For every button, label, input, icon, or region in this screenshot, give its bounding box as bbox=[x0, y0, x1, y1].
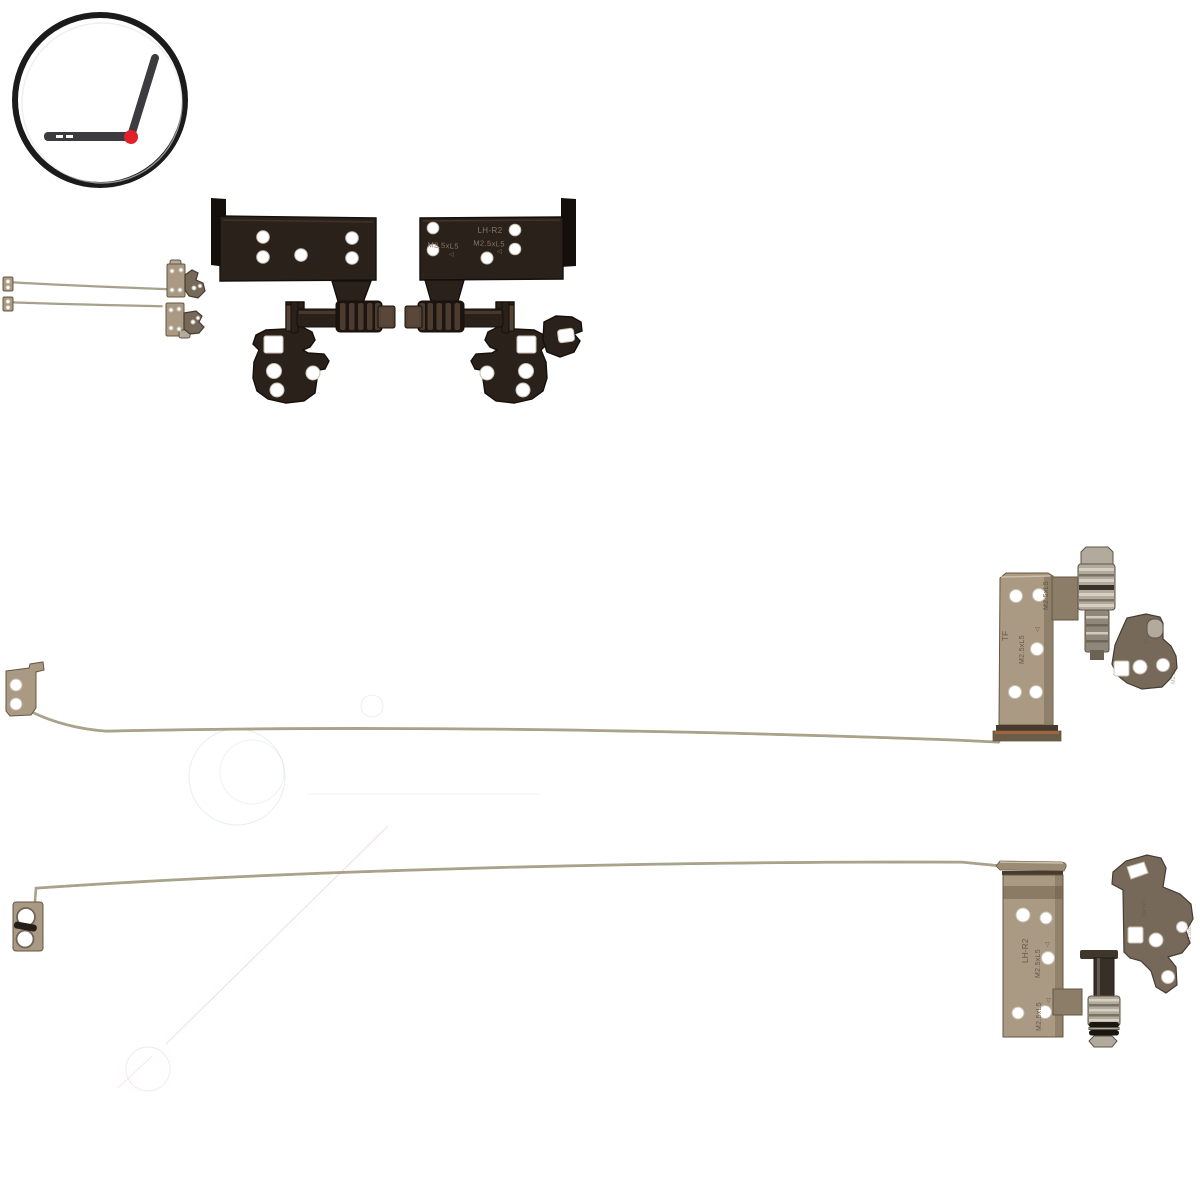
laptop-port-dash bbox=[66, 135, 73, 138]
mini-hinge-rail-2 bbox=[3, 297, 204, 338]
hinge-barrel bbox=[1080, 950, 1120, 1047]
watermark-circle bbox=[220, 740, 284, 804]
stamp-screw-spec: M2.5xL5 bbox=[473, 238, 505, 248]
hinge-barrel bbox=[1078, 547, 1115, 660]
screw-hole bbox=[6, 280, 10, 284]
barrel-rib bbox=[1089, 999, 1119, 1002]
screw-hole bbox=[480, 366, 494, 380]
screw-hole bbox=[1042, 952, 1055, 965]
screw-hole bbox=[519, 364, 534, 379]
screw-hole bbox=[196, 316, 199, 319]
stamp-screw-spec: M2.5xL5 bbox=[1035, 949, 1042, 978]
screw-hole bbox=[1012, 1007, 1024, 1019]
brand-logo bbox=[15, 15, 185, 185]
shaft-highlight bbox=[299, 311, 336, 314]
arm-knuckle bbox=[1147, 619, 1163, 638]
shaft-highlight bbox=[464, 311, 501, 314]
hinge-dot-icon bbox=[124, 130, 138, 144]
screw-hole bbox=[179, 268, 183, 272]
screw-hole bbox=[1162, 971, 1175, 984]
stamp-screw-spec: M2.5xL5 bbox=[427, 240, 459, 251]
screw-hole bbox=[169, 326, 173, 330]
screw-hole bbox=[6, 300, 10, 304]
ring-gap bbox=[1089, 1028, 1119, 1030]
hinge-rail-middle: TF M2.5xL5 M2.5xL5 ◁ △ M2.5xL3 bbox=[6, 547, 1177, 743]
mini-hinge-arm bbox=[185, 270, 205, 298]
dark-hinge-left bbox=[211, 198, 395, 403]
barrel-groove bbox=[1086, 640, 1108, 643]
screw-hole bbox=[306, 366, 320, 380]
knurl-rib bbox=[349, 303, 355, 330]
lip-highlight bbox=[1000, 862, 1063, 863]
watermark bbox=[118, 695, 540, 1091]
screw-hole bbox=[257, 251, 270, 264]
hinge-arm bbox=[1112, 614, 1177, 689]
mini-hinge-rail-1 bbox=[3, 260, 205, 298]
barrel-groove bbox=[1086, 624, 1108, 627]
screw-hole bbox=[509, 224, 521, 236]
stamp-triangle: △ bbox=[1143, 638, 1148, 644]
screw-hole bbox=[1177, 922, 1188, 933]
screw-hole bbox=[1040, 912, 1052, 924]
screw-hole bbox=[198, 284, 201, 287]
barrel-tip bbox=[1090, 650, 1104, 660]
screw-hole bbox=[170, 269, 174, 273]
stamp-screw-spec: M2.5xL5 bbox=[1036, 1002, 1043, 1031]
screw-hole bbox=[1030, 686, 1043, 699]
nut-face bbox=[408, 309, 419, 325]
square-hole bbox=[1128, 927, 1143, 943]
stamp-screw-spec: M2.5xL3 bbox=[1171, 663, 1177, 684]
screw-hole bbox=[1010, 590, 1023, 603]
barrel-hex-cap bbox=[1081, 547, 1113, 564]
screw-hole bbox=[1009, 686, 1022, 699]
o-ring bbox=[1089, 1022, 1119, 1028]
claw-slot bbox=[557, 328, 575, 343]
screw-hole bbox=[1157, 659, 1170, 672]
rail-wire bbox=[35, 862, 1003, 901]
screw-hole bbox=[191, 320, 195, 324]
knurl-rib bbox=[437, 303, 443, 330]
stamp-model: LH-R2 bbox=[477, 226, 502, 235]
screw-hole bbox=[346, 252, 359, 265]
stamp-screw-spec: M2.5xL5 bbox=[1043, 581, 1050, 610]
hinge-neck bbox=[1052, 577, 1078, 620]
nut-face bbox=[381, 309, 392, 325]
dark-hinge-right: LH-R2 M2.5xL5 M2.5xL5 ◁ ◁ bbox=[405, 198, 582, 403]
knurl-rib bbox=[358, 303, 364, 330]
hinge-neck bbox=[1053, 989, 1082, 1015]
stamp-maker-mark: TF bbox=[1001, 631, 1010, 641]
barrel-rib bbox=[1079, 579, 1114, 582]
stamp-triangle: ◁ bbox=[1159, 955, 1164, 961]
mini-rail-wire bbox=[12, 282, 167, 289]
mirrored-parts bbox=[405, 301, 547, 403]
hinge-rail-bottom: LH-R2 M2.5xL5 ◁ M2.5xL5 ◁ LH-R2 bbox=[13, 855, 1193, 1047]
lip-orange-line bbox=[995, 731, 1059, 734]
screw-hole bbox=[346, 232, 359, 245]
screw-hole bbox=[516, 383, 530, 397]
screw-hole bbox=[192, 286, 196, 290]
rail-wire bbox=[32, 712, 999, 742]
plate-highlight bbox=[1001, 576, 1050, 577]
rail-edge bbox=[35, 863, 1003, 902]
barrel-rib bbox=[1089, 1019, 1119, 1022]
knurl-rib bbox=[428, 303, 434, 330]
stamp-triangle: ◁ bbox=[497, 249, 502, 255]
watermark-diagonal-line bbox=[166, 826, 388, 1044]
barrel-groove bbox=[1089, 1004, 1119, 1007]
stamp-model: LH-R2 bbox=[1021, 938, 1030, 963]
hinge-plate bbox=[220, 216, 376, 281]
screw-hole bbox=[509, 243, 521, 255]
barrel-hex-nut bbox=[1089, 1036, 1117, 1047]
barrel-groove bbox=[1089, 1014, 1119, 1017]
shaft-highlight bbox=[1097, 958, 1100, 998]
stamp-triangle: ◁ bbox=[1046, 998, 1052, 1003]
square-hole bbox=[1114, 661, 1129, 676]
screw-hole bbox=[481, 252, 493, 264]
screw-hole bbox=[10, 679, 22, 691]
o-ring bbox=[1089, 1030, 1119, 1036]
screw-hole bbox=[170, 288, 174, 292]
product-photo-laptop-hinges: LH-R2 M2.5xL5 M2.5xL5 ◁ ◁ TF M2.5xL5 M2.… bbox=[0, 0, 1200, 1200]
screw-hole bbox=[6, 306, 10, 310]
screw-hole bbox=[177, 307, 181, 311]
plate-gap-shadow bbox=[1002, 871, 1063, 875]
barrel-rib bbox=[1079, 593, 1114, 596]
laptop-port-dash bbox=[56, 135, 63, 138]
watermark-circle bbox=[126, 1047, 170, 1091]
screw-hole bbox=[10, 698, 22, 710]
stamp-model: LH-R2 bbox=[1140, 900, 1146, 918]
barrel-rib bbox=[1079, 568, 1114, 571]
screw-hole bbox=[177, 327, 181, 331]
knurl-rib bbox=[367, 303, 373, 330]
screw-hole bbox=[427, 222, 439, 234]
watermark-diagonal-line bbox=[118, 1056, 152, 1088]
screw-hole bbox=[6, 286, 10, 290]
square-hole bbox=[264, 336, 283, 353]
stamp-screw-spec: M2.5xL5 bbox=[1019, 635, 1026, 664]
knurl-rib bbox=[455, 303, 461, 330]
plate-curve-shade bbox=[1003, 886, 1063, 899]
stamp-screw-spec: M2.5xL3 bbox=[1187, 923, 1193, 944]
screw-hole bbox=[1016, 908, 1030, 922]
screw-hole bbox=[267, 364, 282, 379]
plate-highlight bbox=[423, 220, 560, 221]
knurl-rib bbox=[446, 303, 452, 330]
barrel-rib bbox=[1086, 632, 1108, 635]
barrel-groove bbox=[1079, 574, 1114, 577]
barrel-rib bbox=[1079, 604, 1114, 607]
square-hole bbox=[517, 336, 536, 353]
screw-hole bbox=[169, 308, 173, 312]
screw-hole bbox=[17, 931, 34, 948]
barrel-rib bbox=[1086, 616, 1108, 619]
screw-hole bbox=[1149, 933, 1163, 947]
screw-hole bbox=[270, 383, 284, 397]
screw-hole bbox=[295, 249, 308, 262]
screw-hole bbox=[1133, 660, 1147, 674]
stamp-triangle: ◁ bbox=[1035, 627, 1041, 632]
screw-hole bbox=[178, 288, 182, 292]
plate-gap-shadow bbox=[996, 725, 1058, 731]
barrel-groove bbox=[1079, 599, 1114, 602]
screw-hole bbox=[257, 231, 270, 244]
watermark-circle bbox=[361, 695, 383, 717]
stamp-triangle: ◁ bbox=[449, 252, 454, 258]
barrel-rib bbox=[1089, 1009, 1119, 1012]
barrel-band bbox=[1079, 585, 1114, 590]
knurl-rib bbox=[340, 303, 346, 330]
stamp-triangle: ◁ bbox=[1045, 942, 1051, 947]
screw-hole bbox=[1031, 643, 1044, 656]
